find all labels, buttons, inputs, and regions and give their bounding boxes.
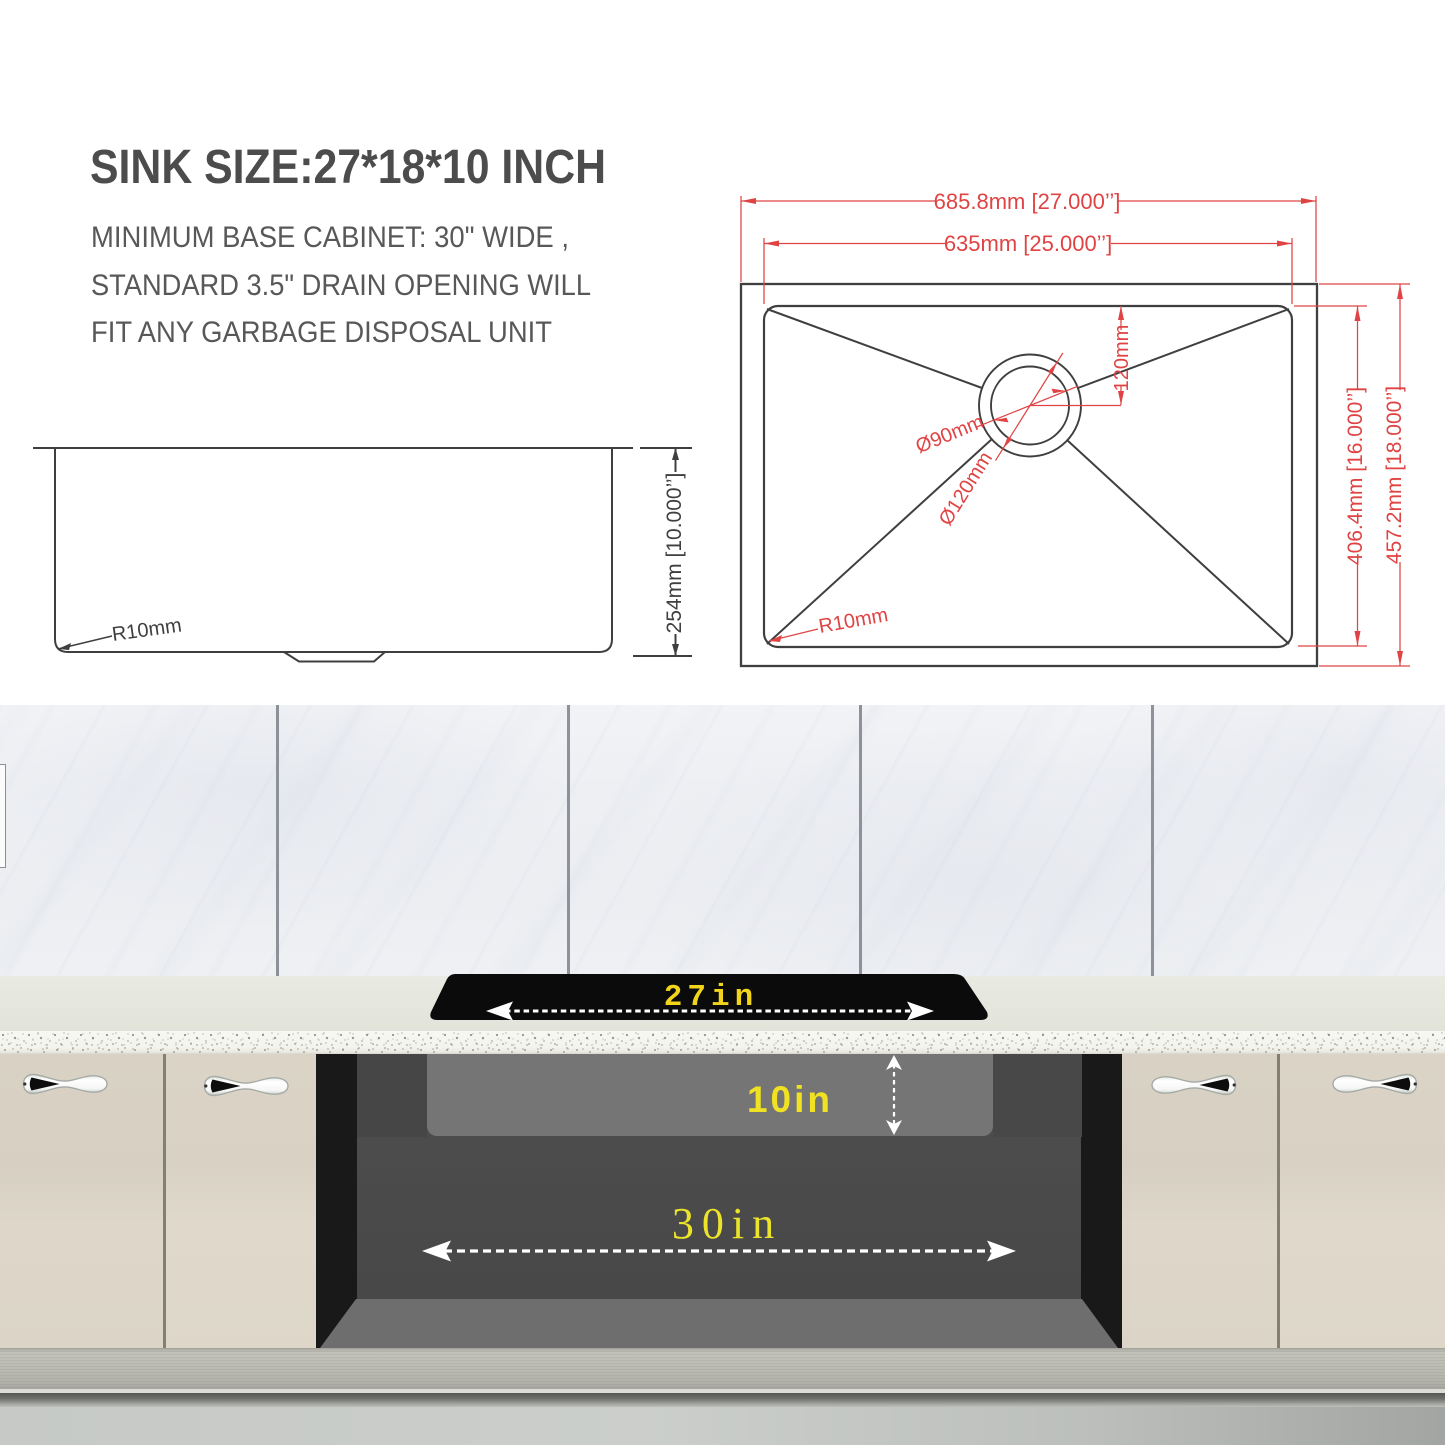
svg-text:685.8mm [27.000’’]: 685.8mm [27.000’’] [934,189,1121,214]
svg-text:STANDARD 3.5" DRAIN OPENING WI: STANDARD 3.5" DRAIN OPENING WILL [91,269,591,302]
svg-text:Ø120mm: Ø120mm [935,448,997,529]
svg-text:10in: 10in [747,1079,833,1120]
svg-text:254mm [10.000’’]: 254mm [10.000’’] [663,473,686,634]
svg-text:MINIMUM BASE CABINET: 30" WIDE: MINIMUM BASE CABINET: 30" WIDE , [91,221,569,254]
svg-text:FIT ANY GARBAGE DISPOSAL UNIT: FIT ANY GARBAGE DISPOSAL UNIT [91,316,552,349]
svg-text:120mm: 120mm [1111,325,1133,392]
svg-text:457.2mm [18.000’’]: 457.2mm [18.000’’] [1383,386,1406,564]
svg-text:30in: 30in [672,1199,782,1248]
svg-text:SINK SIZE:27*18*10 INCH: SINK SIZE:27*18*10 INCH [90,141,606,194]
svg-text:635mm [25.000’’]: 635mm [25.000’’] [944,231,1112,256]
svg-text:R10mm: R10mm [817,604,890,638]
svg-text:406.4mm [16.000’’]: 406.4mm [16.000’’] [1344,387,1367,565]
svg-text:R10mm: R10mm [111,614,183,646]
